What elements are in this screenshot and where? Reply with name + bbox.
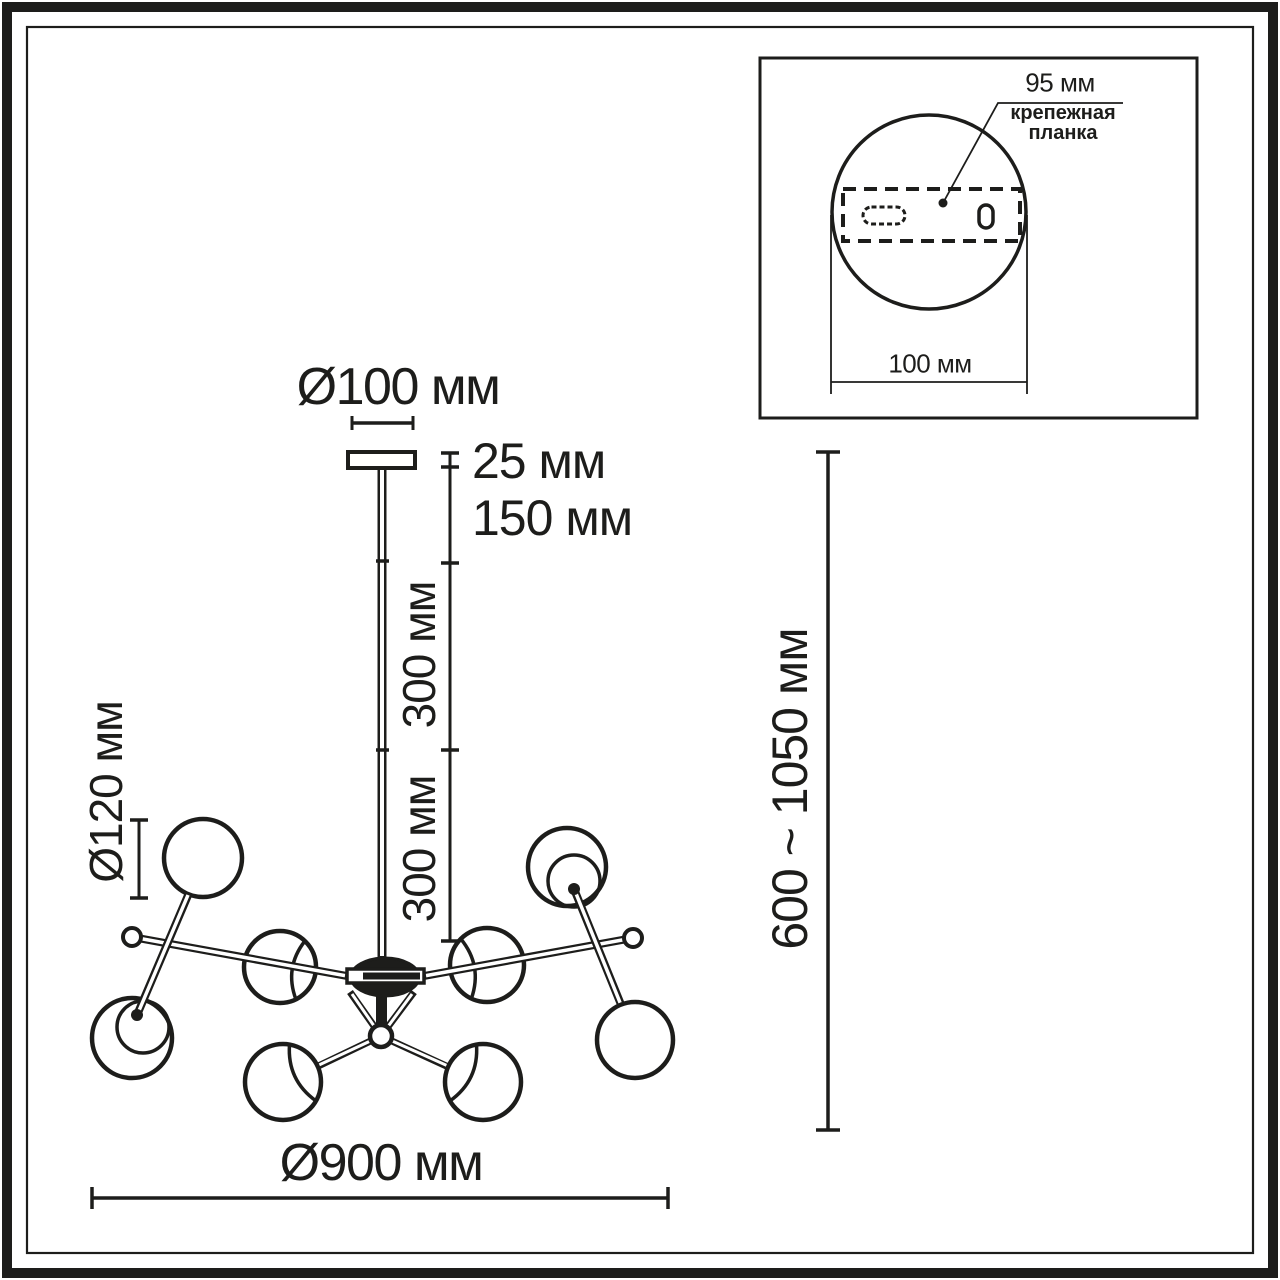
label-fixture-diameter: Ø900 мм [280, 1133, 483, 1193]
central-hub [347, 958, 424, 996]
hanging-rod [376, 468, 389, 958]
glass-ball-right [597, 1002, 673, 1078]
arm-end-knob-left [123, 928, 141, 946]
dim-line-overall-height [816, 452, 840, 1130]
chandelier-side-view [92, 452, 673, 1120]
label-base-diameter: 100 мм [888, 349, 971, 380]
mounting-inset [760, 58, 1197, 418]
rod-pivot-dot-left [131, 1009, 143, 1021]
glass-ball-lower-left [92, 998, 172, 1078]
arm-end-knob-right [624, 929, 642, 947]
label-ball-diameter: Ø120 мм [79, 701, 133, 883]
technical-drawing [0, 0, 1280, 1280]
ceiling-canopy-plate [348, 452, 415, 468]
glass-ball-lower-center-right [445, 1044, 521, 1120]
inset-border-box [760, 58, 1197, 418]
dim-line-canopy-diameter [352, 416, 413, 430]
glass-ball-lower-center-left [245, 1044, 321, 1120]
cross-pivot-ring [370, 1025, 392, 1047]
label-canopy-diameter: Ø100 мм [297, 357, 500, 417]
outer-frame-line [7, 7, 1273, 1273]
label-plate-caption: крепежная планка [1010, 103, 1115, 143]
canopy-base-circle [832, 115, 1026, 309]
label-rod-section-middle: 300 мм [392, 582, 446, 729]
mounting-slot-right [979, 205, 993, 228]
label-overall-height: 600 ~ 1050 мм [761, 628, 819, 949]
page-frame [7, 7, 1273, 1273]
dimension-drawing-page: Ø100 мм 25 мм 150 мм 300 мм 300 мм Ø120 … [0, 0, 1280, 1280]
label-plate-caption-line2: планка [1010, 123, 1115, 143]
dumbbell-rod-left [137, 893, 189, 1015]
rod-pivot-dot-right [568, 883, 580, 895]
label-plate-width: 95 мм [1025, 68, 1094, 99]
label-rod-section-lower: 300 мм [392, 776, 446, 923]
label-rod-section-upper: 150 мм [472, 489, 632, 547]
label-plate-caption-line1: крепежная [1010, 103, 1115, 123]
mounting-slot-left [863, 207, 905, 224]
glass-ball-upper-left [164, 819, 242, 897]
label-canopy-thickness: 25 мм [472, 432, 605, 490]
